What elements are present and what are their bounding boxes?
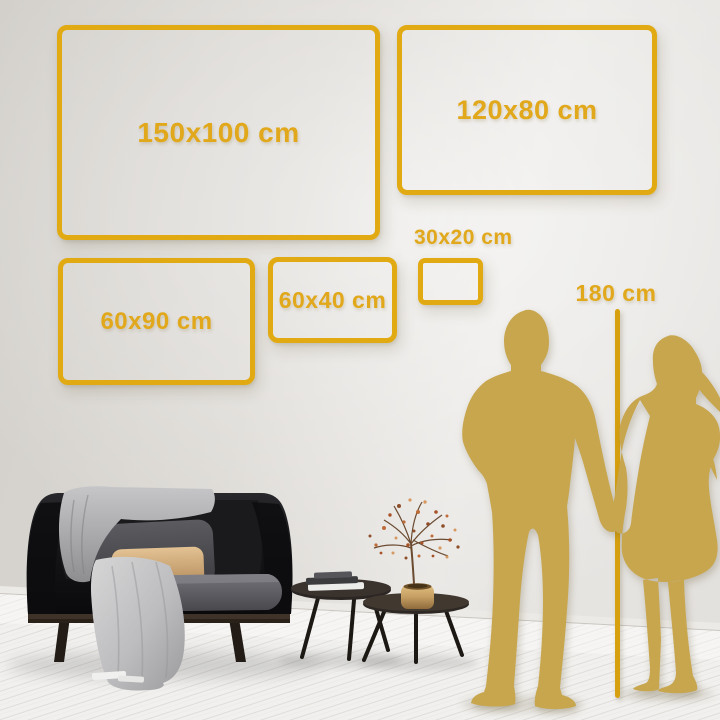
woman-silhouette xyxy=(612,335,720,693)
couple-silhouette xyxy=(0,0,720,720)
size-chart-scene: 150x100 cm 120x80 cm 60x90 cm 60x40 cm 3… xyxy=(0,0,720,720)
man-silhouette xyxy=(462,310,619,709)
